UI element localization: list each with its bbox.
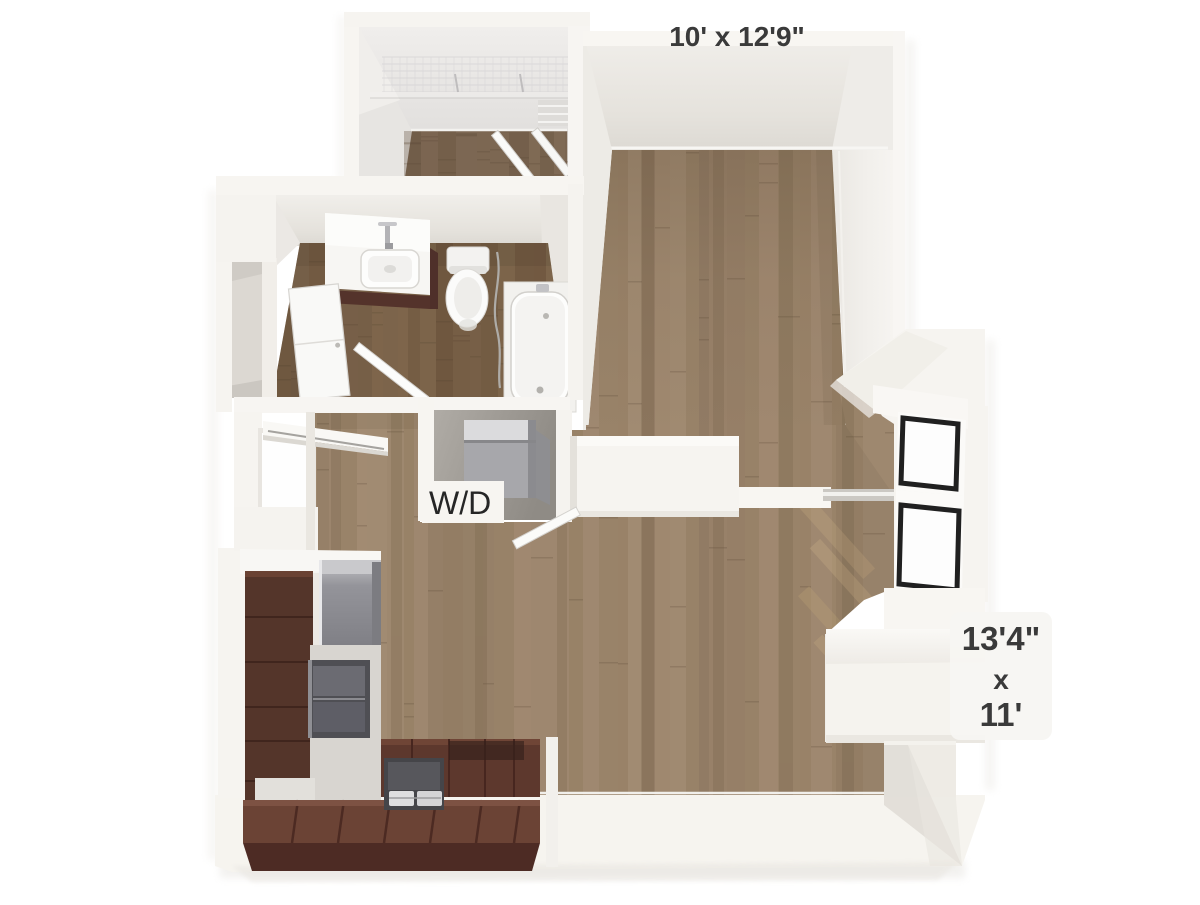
svg-text:13'4": 13'4" [962, 620, 1041, 657]
svg-text:W/D: W/D [429, 485, 491, 521]
svg-text:11': 11' [980, 696, 1023, 733]
svg-text:x: x [993, 664, 1009, 695]
svg-text:10' x 12'9": 10' x 12'9" [669, 21, 805, 52]
